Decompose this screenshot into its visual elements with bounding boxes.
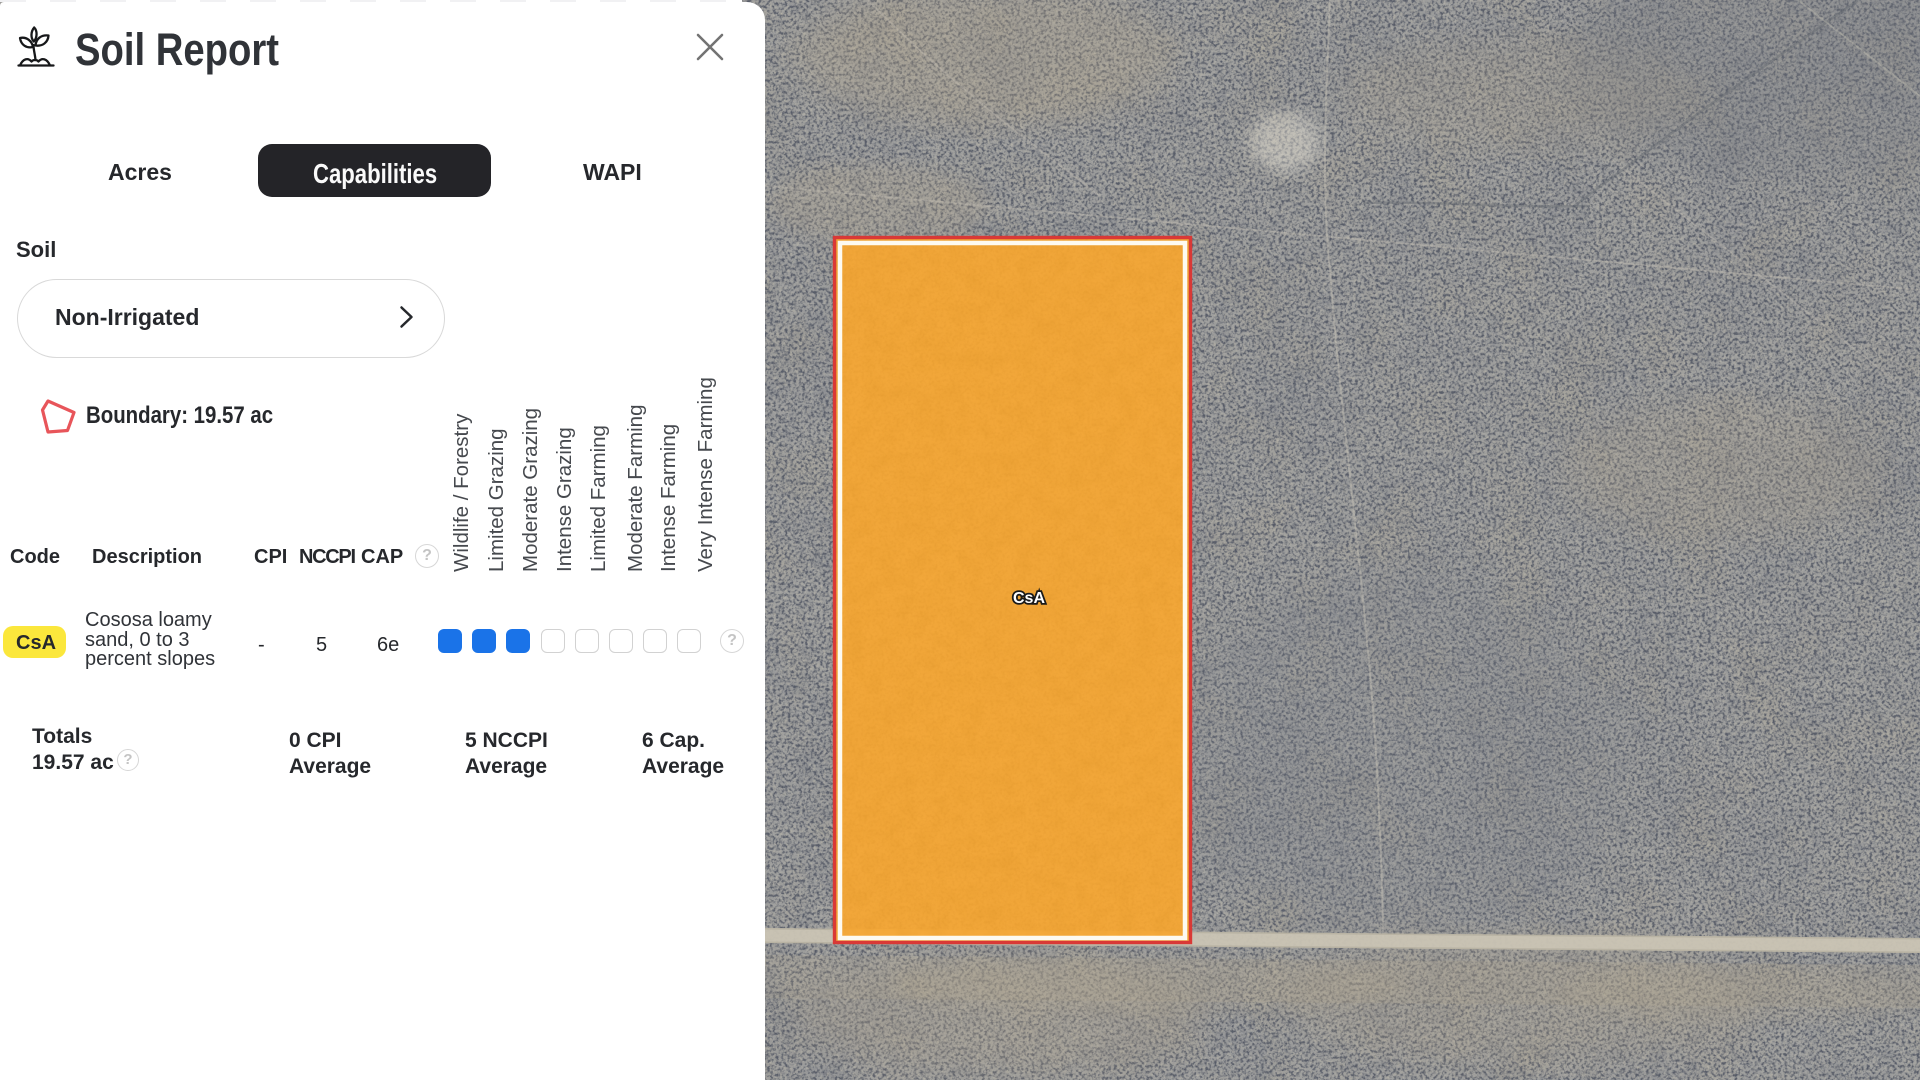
svg-text:CsA: CsA <box>1013 590 1045 607</box>
